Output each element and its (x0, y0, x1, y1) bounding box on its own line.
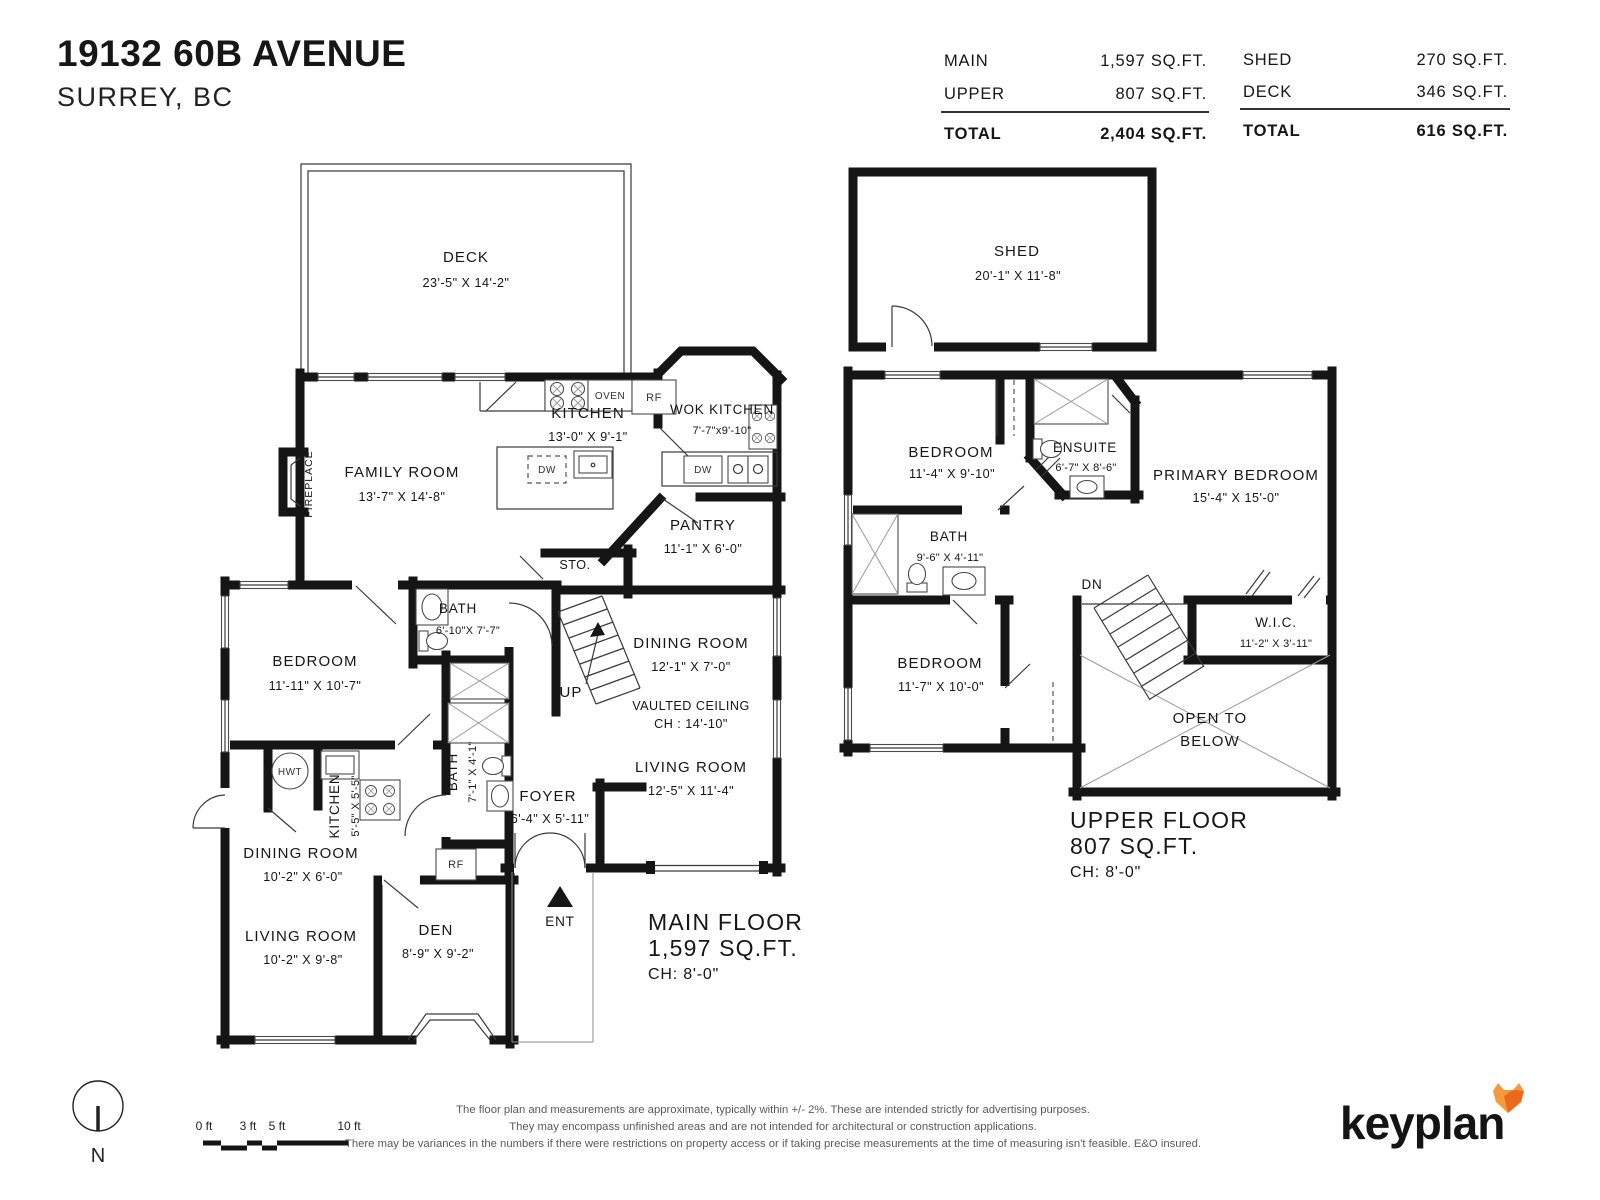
room-dims-primary-bedroom: 15'-4" X 15'-0" (1192, 491, 1279, 505)
room-dims-deck: 23'-5" X 14'-2" (422, 276, 509, 290)
entry-label: ENT (545, 914, 574, 929)
dishwasher-label: DW (538, 465, 556, 476)
scale-label-5: 5 ft (269, 1119, 286, 1133)
table-row-label: SHED (1243, 51, 1292, 69)
scale-bar-steps (203, 1143, 348, 1148)
compass: N (73, 1081, 123, 1167)
room-dims-ensuite: 6'-7" X 8'-6" (1055, 462, 1116, 474)
floor-ch-upper: CH: 8'-0" (1070, 864, 1141, 881)
shed: SHED 20'-1" X 11'-8" (853, 172, 1152, 352)
room-dims-wok-kitchen: 7'-7"x9'-10" (692, 425, 751, 437)
floor-title-upper: UPPER FLOOR (1070, 807, 1248, 833)
disclaimer-line2: They may encompass unfinished areas and … (509, 1121, 1036, 1133)
oven-label: OVEN (595, 391, 625, 402)
room-label-dining2: DINING ROOM (243, 845, 358, 862)
room-label-primary-bedroom: PRIMARY BEDROOM (1153, 467, 1319, 484)
room-dims-living2: 10'-2" X 9'-8" (263, 953, 343, 967)
room-label-bath2: BATH (445, 753, 460, 791)
stairs-up-label: UP (559, 684, 582, 701)
room-dims-bath1: 6'-10"X 7'-7" (436, 625, 500, 637)
floor-plan-sheet: 19132 60B AVENUE SURREY, BC MAIN 1,597 S… (0, 0, 1600, 1200)
logo-text: keyplan (1340, 1097, 1504, 1149)
floor-area-upper: 807 SQ.FT. (1070, 833, 1198, 859)
upper-stairs (1082, 575, 1204, 700)
upper-bath-toilet (907, 564, 927, 593)
room-label-up-bedroom2: BEDROOM (897, 655, 982, 672)
fireplace-label: FIREPLACE (303, 450, 315, 517)
vaulted-ceiling-line1: VAULTED CEILING (632, 699, 750, 713)
floor-area-main: 1,597 SQ.FT. (648, 935, 798, 961)
table-row-value: 807 SQ.FT. (1116, 85, 1207, 103)
disclaimer: The floor plan and measurements are appr… (345, 1104, 1201, 1150)
room-dims-bedroom: 11'-11" X 10'-7" (269, 679, 362, 693)
room-dims-kitchen2: 5'-5" X 5'-5" (350, 775, 362, 836)
vaulted-ceiling-line2: CH : 14'-10" (654, 717, 728, 731)
entry-arrow (547, 886, 573, 907)
room-label-wok-kitchen: WOK KITCHEN (670, 402, 774, 417)
page-subtitle: SURREY, BC (57, 82, 234, 112)
bath2-toilet (483, 756, 512, 776)
room-dims-dining2: 10'-2" X 6'-0" (263, 870, 343, 884)
scale-label-10: 10 ft (337, 1119, 361, 1133)
room-label-bath1: BATH (439, 601, 477, 616)
room-dims-living1: 12'-5" X 11'-4" (648, 784, 734, 798)
room-dims-family-room: 13'-7" X 14'-8" (358, 490, 445, 504)
room-label-ensuite: ENSUITE (1053, 440, 1117, 455)
table-total-value: 2,404 SQ.FT. (1100, 125, 1207, 143)
room-label-deck: DECK (443, 249, 489, 266)
room-dims-up-bedroom2: 11'-7" X 10'-0" (898, 680, 984, 694)
bay-window-den (408, 1014, 496, 1040)
disclaimer-line3: There may be variances in the numbers if… (345, 1138, 1201, 1150)
room-label-pantry: PANTRY (670, 517, 736, 534)
room-label-family-room: FAMILY ROOM (345, 464, 460, 481)
room-label-living2: LIVING ROOM (245, 928, 357, 945)
room-label-wic: W.I.C. (1255, 615, 1297, 630)
room-label-shed: SHED (994, 243, 1040, 260)
header: 19132 60B AVENUE SURREY, BC MAIN 1,597 S… (57, 33, 1510, 143)
floor-ch-main: CH: 8'-0" (648, 966, 719, 983)
keyplan-logo: keyplan (1340, 1083, 1524, 1149)
kitchen2-range (360, 780, 400, 820)
hwt-label: HWT (278, 767, 302, 778)
table-total-value: 616 SQ.FT. (1417, 122, 1508, 140)
room-label-bedroom: BEDROOM (272, 653, 357, 670)
room-dims-up-bath: 9'-6" X 4'-11" (917, 552, 984, 564)
room-label-kitchen: KITCHEN (551, 405, 625, 422)
room-label-up-bath: BATH (930, 529, 968, 544)
room-dims-kitchen: 13'-0" X 9'-1" (548, 430, 628, 444)
room-dims-shed: 20'-1" X 11'-8" (975, 269, 1061, 283)
room-label-foyer: FOYER (519, 788, 576, 805)
room-label-kitchen2: KITCHEN (327, 774, 342, 839)
room-label-storage: STO. (559, 558, 590, 572)
room-dims-bath2: 7'-1" X 4'-1" (467, 741, 479, 802)
room-dims-foyer: 6'-4" X 5'-11" (511, 812, 590, 826)
open-to-below-line2: BELOW (1180, 733, 1240, 750)
scale-label-0: 0 ft (196, 1119, 213, 1133)
stairs-dn-label: DN (1081, 577, 1102, 592)
page-title: 19132 60B AVENUE (57, 33, 406, 74)
room-dims-den: 8'-9" X 9'-2" (402, 947, 474, 961)
table-total-label: TOTAL (1243, 122, 1300, 140)
area-table-right: SHED 270 SQ.FT. DECK 346 SQ.FT. TOTAL 61… (1240, 51, 1510, 140)
north-label: N (91, 1145, 105, 1167)
room-dims-dining1: 12'-1" X 7'-0" (651, 660, 731, 674)
table-row-label: DECK (1243, 83, 1292, 101)
table-row-label: UPPER (944, 85, 1005, 103)
room-dims-wic: 11'-2" X 3'-11" (1240, 638, 1312, 650)
table-row-value: 1,597 SQ.FT. (1100, 52, 1207, 70)
table-total-label: TOTAL (944, 125, 1001, 143)
open-to-below-line1: OPEN TO (1173, 710, 1248, 727)
disclaimer-line1: The floor plan and measurements are appr… (456, 1104, 1090, 1116)
table-row-value: 270 SQ.FT. (1417, 51, 1508, 69)
table-row-value: 346 SQ.FT. (1417, 83, 1508, 101)
bay-window-living (646, 861, 768, 874)
den-fridge-label: RF (448, 859, 464, 871)
area-table-left: MAIN 1,597 SQ.FT. UPPER 807 SQ.FT. TOTAL… (941, 52, 1209, 143)
table-row-label: MAIN (944, 52, 988, 70)
floor-title-main: MAIN FLOOR (648, 909, 803, 935)
scale-bar: 0 ft 3 ft 5 ft 10 ft (196, 1119, 362, 1148)
upper-floor-title-block: UPPER FLOOR 807 SQ.FT. CH: 8'-0" (1070, 807, 1248, 881)
room-label-up-bedroom1: BEDROOM (908, 444, 993, 461)
floor-plan-canvas: 19132 60B AVENUE SURREY, BC MAIN 1,597 S… (0, 0, 1600, 1200)
room-label-den: DEN (419, 922, 454, 939)
room-label-living1: LIVING ROOM (635, 759, 747, 776)
wok-dishwasher-label: DW (694, 465, 712, 476)
room-dims-pantry: 11'-1" X 6'-0" (664, 542, 743, 556)
deck-outline (301, 164, 631, 374)
room-dims-up-bedroom1: 11'-4" X 9'-10" (909, 467, 995, 481)
room-label-dining1: DINING ROOM (633, 635, 748, 652)
scale-label-3: 3 ft (240, 1119, 257, 1133)
fridge-label: RF (646, 392, 662, 404)
main-floor-title-block: MAIN FLOOR 1,597 SQ.FT. CH: 8'-0" (648, 909, 803, 983)
